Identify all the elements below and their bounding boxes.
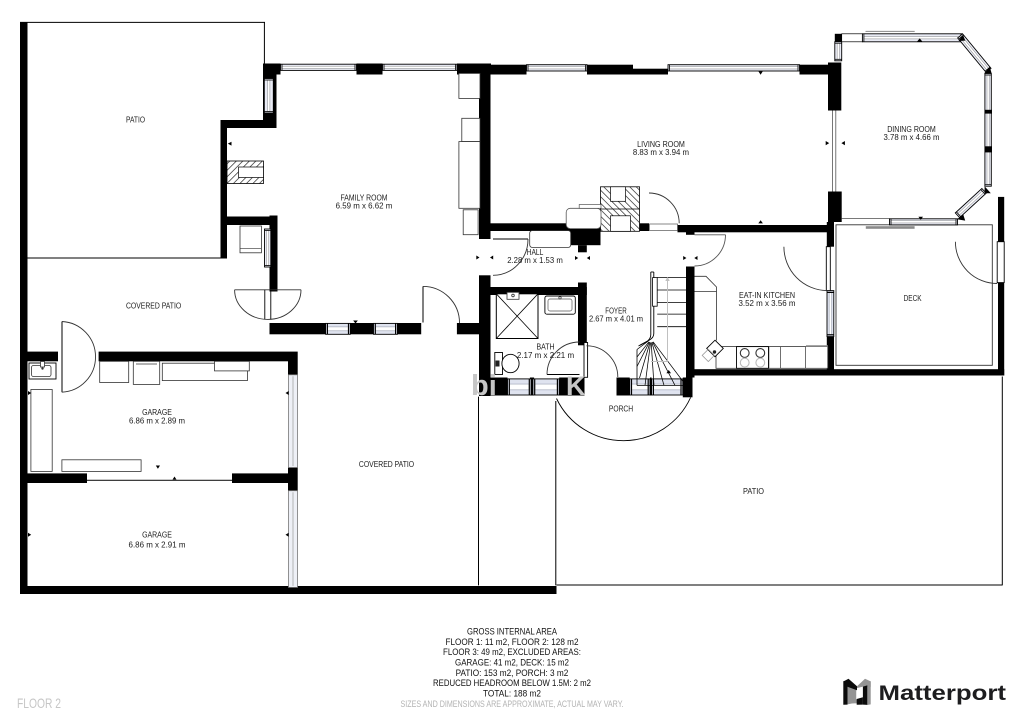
svg-text:3.52 m x 3.56 m: 3.52 m x 3.56 m: [738, 298, 795, 308]
svg-text:6.59 m x 6.62 m: 6.59 m x 6.62 m: [336, 201, 393, 211]
svg-text:COVERED PATIO: COVERED PATIO: [359, 459, 415, 469]
svg-text:6.86 m x 2.91 m: 6.86 m x 2.91 m: [129, 540, 186, 550]
svg-text:REDUCED HEADROOM BELOW 1.5M: 2: REDUCED HEADROOM BELOW 1.5M: 2 m2: [433, 678, 591, 688]
svg-text:SIZES AND DIMENSIONS ARE APPRO: SIZES AND DIMENSIONS ARE APPROXIMATE, AC…: [401, 699, 624, 709]
svg-text:PATIO: 153 m2, PORCH: 3 m2: PATIO: 153 m2, PORCH: 3 m2: [456, 668, 569, 678]
svg-text:PORCH: PORCH: [609, 403, 633, 413]
svg-text:PATIO: PATIO: [126, 115, 145, 125]
svg-text:2.67 m x 4.01 m: 2.67 m x 4.01 m: [589, 314, 643, 324]
svg-text:bi: bi: [471, 370, 497, 402]
svg-text:Matterport: Matterport: [879, 682, 1007, 705]
svg-text:2.28 m x 1.53 m: 2.28 m x 1.53 m: [507, 255, 563, 265]
svg-text:2.17 m x 2.21 m: 2.17 m x 2.21 m: [517, 350, 574, 360]
svg-text:GARAGE: 41 m2, DECK: 15 m2: GARAGE: 41 m2, DECK: 15 m2: [455, 658, 569, 668]
svg-text:K: K: [566, 371, 586, 401]
svg-text:GROSS INTERNAL AREA: GROSS INTERNAL AREA: [467, 627, 558, 637]
svg-text:TOTAL: 188 m2: TOTAL: 188 m2: [483, 688, 541, 698]
svg-text:COVERED PATIO: COVERED PATIO: [126, 301, 182, 311]
svg-text:3.78 m x 4.66 m: 3.78 m x 4.66 m: [884, 132, 940, 142]
svg-text:6.86 m x 2.89 m: 6.86 m x 2.89 m: [129, 416, 185, 426]
svg-text:PATIO: PATIO: [743, 486, 764, 496]
svg-text:FLOOR 1: 11 m2, FLOOR 2: 128 m: FLOOR 1: 11 m2, FLOOR 2: 128 m2: [446, 637, 579, 647]
svg-text:DECK: DECK: [904, 293, 922, 303]
svg-text:GARAGE: GARAGE: [142, 530, 172, 540]
svg-text:FLOOR 2: FLOOR 2: [17, 695, 61, 711]
svg-text:8.83 m x 3.94 m: 8.83 m x 3.94 m: [633, 147, 689, 157]
svg-text:FLOOR 3: 49 m2, EXCLUDED AREAS: FLOOR 3: 49 m2, EXCLUDED AREAS:: [443, 647, 581, 657]
